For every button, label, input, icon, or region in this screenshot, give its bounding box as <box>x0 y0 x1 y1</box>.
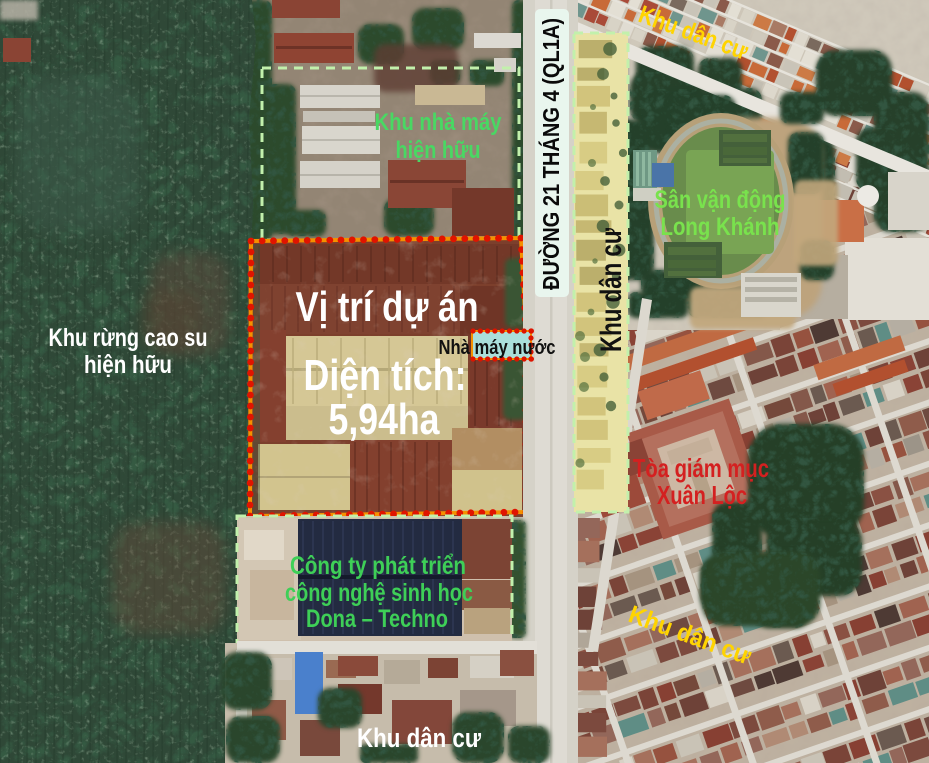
svg-text:Tòa giám mục: Tòa giám mục <box>633 453 769 483</box>
svg-text:công nghệ sinh học: công nghệ sinh học <box>285 579 473 607</box>
svg-text:Khu dân cư: Khu dân cư <box>595 228 628 352</box>
svg-text:ĐƯỜNG 21 THÁNG 4 (QL1A): ĐƯỜNG 21 THÁNG 4 (QL1A) <box>537 18 564 290</box>
svg-text:Khu rừng cao su: Khu rừng cao su <box>49 324 208 352</box>
svg-text:Nhà máy nước: Nhà máy nước <box>439 337 556 359</box>
svg-text:Công ty phát triển: Công ty phát triển <box>290 552 466 580</box>
svg-text:hiện hữu: hiện hữu <box>396 137 481 164</box>
svg-text:5,94ha: 5,94ha <box>329 395 440 444</box>
svg-text:Khu nhà máy: Khu nhà máy <box>375 109 503 136</box>
svg-text:Sân vận động: Sân vận động <box>655 186 786 214</box>
svg-text:Xuân Lộc: Xuân Lộc <box>657 480 747 510</box>
svg-text:Dona – Techno: Dona – Techno <box>306 605 448 633</box>
svg-text:Khu dân cư: Khu dân cư <box>357 723 481 753</box>
svg-text:Long Khánh: Long Khánh <box>661 213 780 241</box>
svg-text:hiện hữu: hiện hữu <box>84 351 172 379</box>
svg-text:Vị trí dự án: Vị trí dự án <box>296 283 479 330</box>
